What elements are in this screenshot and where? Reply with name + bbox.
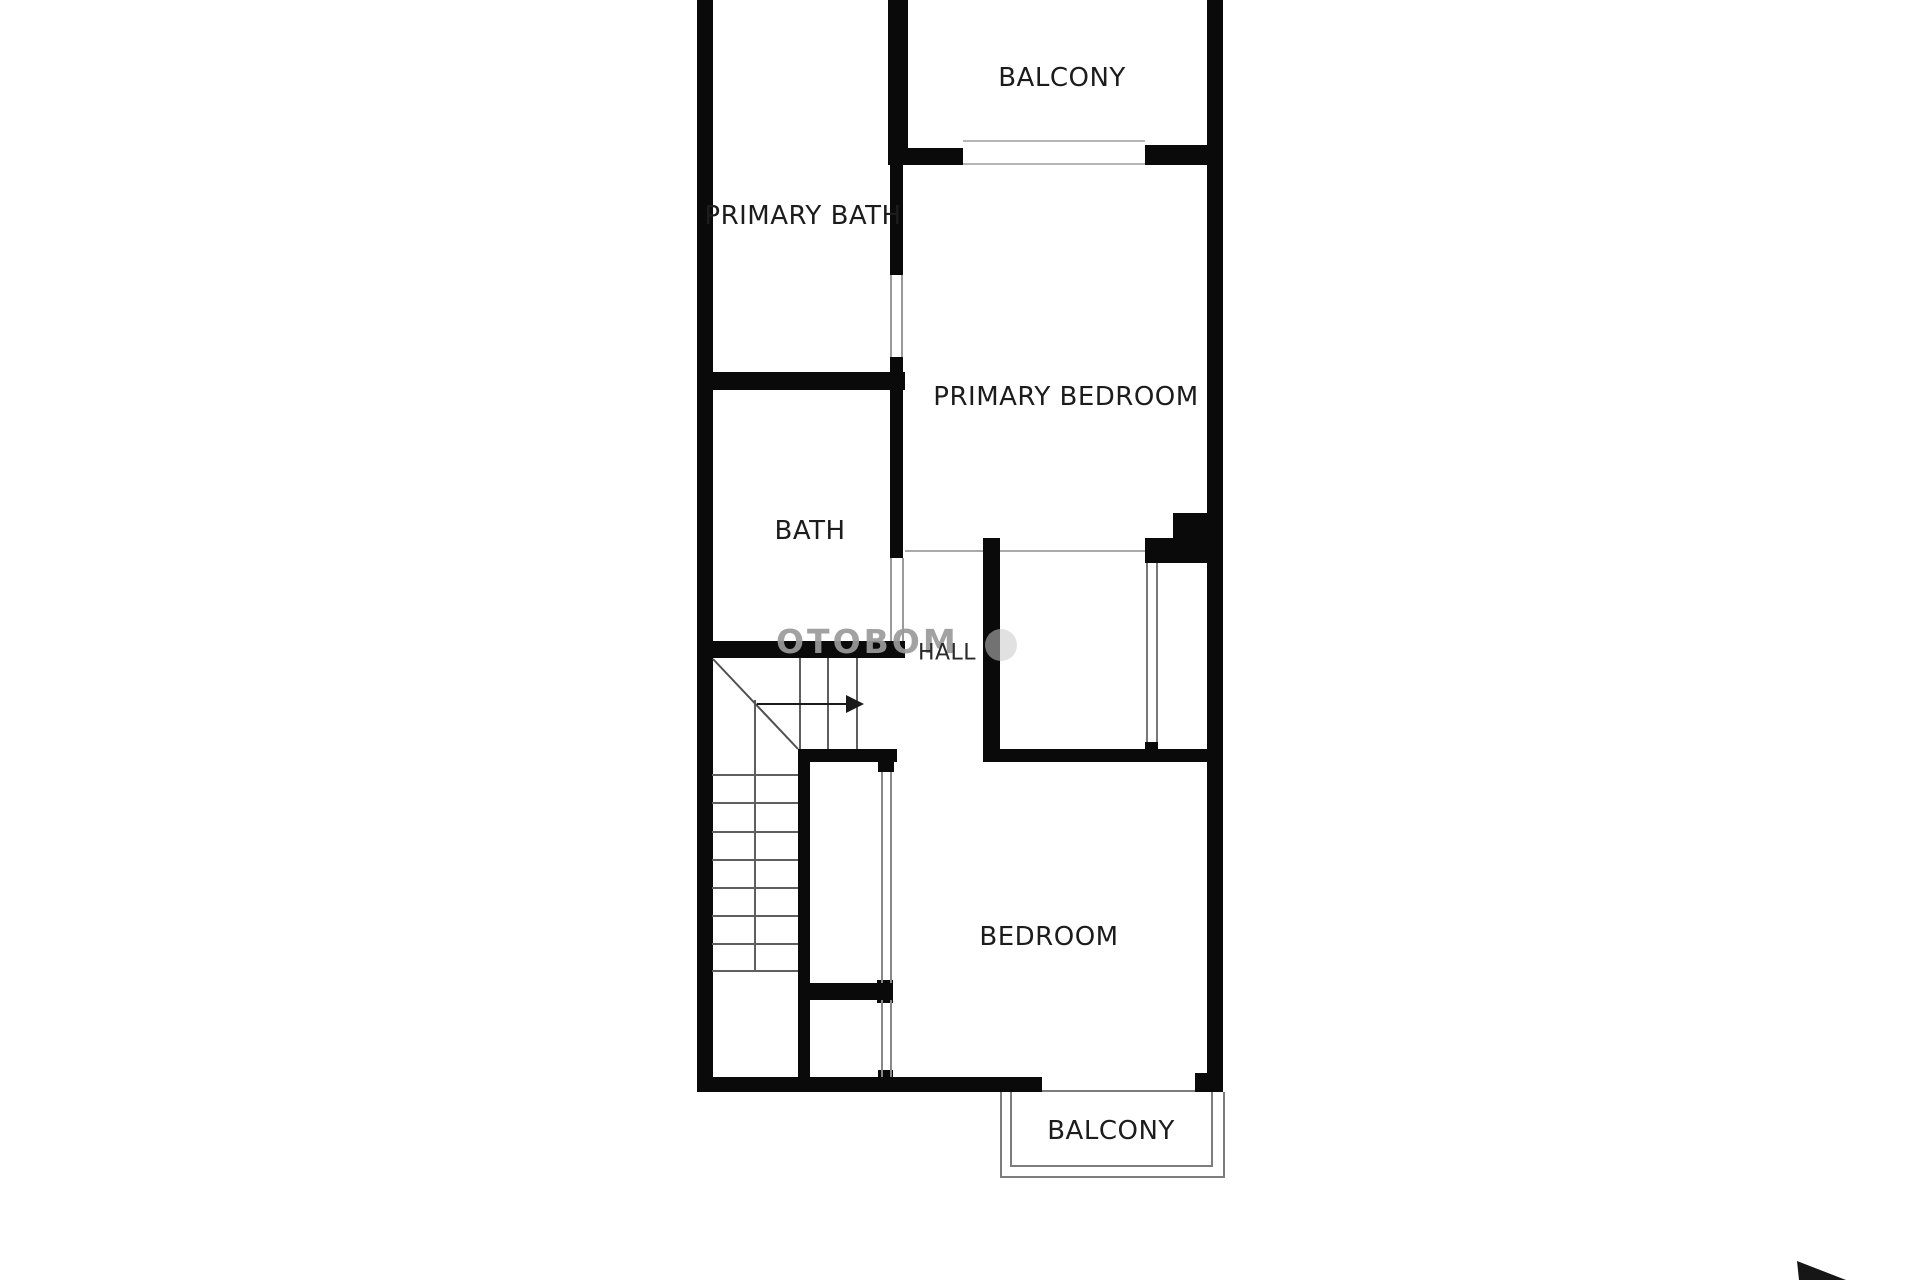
room-label-balcony-bottom: BALCONY	[1047, 1116, 1175, 1146]
room-label-bedroom: BEDROOM	[979, 922, 1118, 952]
room-label-primary-bath: PRIMARY BATH	[704, 201, 901, 231]
room-label-balcony-top: BALCONY	[998, 63, 1126, 93]
watermark-circle-icon	[985, 629, 1017, 661]
floor-plan-canvas: BALCONY PRIMARY BATH PRIMARY BEDROOM BAT…	[0, 0, 1920, 1280]
logo-arrow-icon	[1797, 1261, 1846, 1280]
room-label-primary-bedroom: PRIMARY BEDROOM	[933, 382, 1198, 412]
room-label-bath: BATH	[774, 516, 845, 546]
room-label-hall: HALL	[918, 641, 976, 666]
stair-arrow-icon	[846, 695, 864, 713]
